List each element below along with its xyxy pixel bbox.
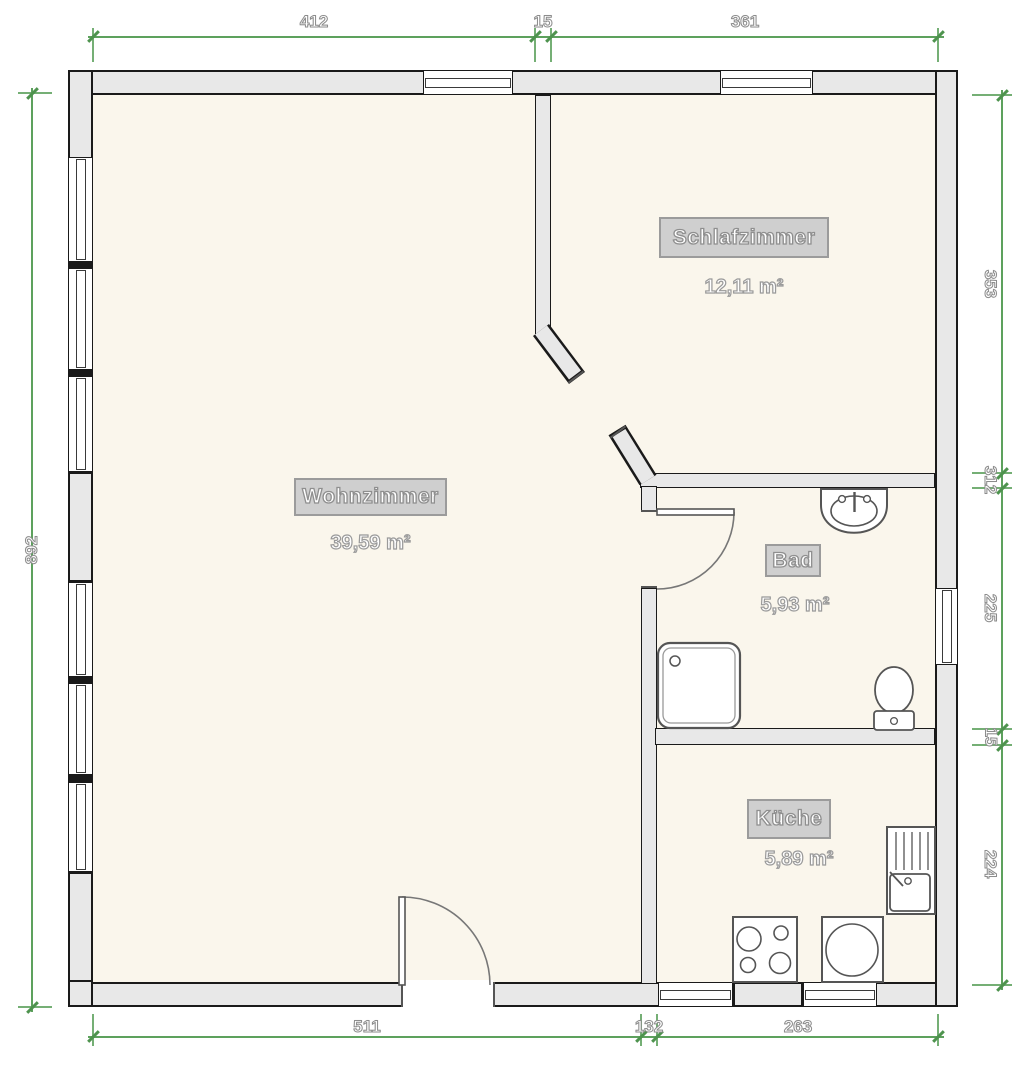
room-label-bad: Bad [765,544,821,577]
dim-label: 412 [300,12,328,32]
dim-label: 132 [635,1017,663,1037]
bedroom-diagonal-wall [541,330,648,480]
dim-label: 892 [22,536,42,564]
bathroom-door[interactable] [657,509,734,589]
dim-label: 312 [980,466,1000,494]
dim-label: 225 [980,594,1000,622]
entry-door[interactable] [399,897,490,985]
room-name: Bad [772,549,813,573]
floor-plan: Wohnzimmer 39,59 m² Schlafzimmer 12,11 m… [0,0,1033,1080]
kitchen-sink-icon [887,827,935,914]
dim-label: 263 [784,1017,812,1037]
washer-icon [822,917,883,982]
shower-icon [658,643,740,728]
room-label-schlafzimmer: Schlafzimmer [659,217,829,258]
dim-label: 15 [534,12,553,32]
room-area: 5,93 m² [761,594,830,617]
washbasin-icon [821,489,887,533]
room-area: 39,59 m² [330,532,410,555]
room-area: 5,89 m² [765,848,834,871]
dim-label: 511 [353,1017,380,1037]
dim-label: 15 [980,728,1000,747]
room-area-wohnzimmer: 39,59 m² [294,528,447,558]
room-area: 12,11 m² [705,276,784,299]
room-name: Schlafzimmer [673,226,816,250]
toilet-icon [874,667,914,730]
stove-icon [733,917,797,982]
dim-label: 361 [731,12,759,32]
room-label-kueche: Küche [747,799,831,839]
room-area-schlafzimmer: 12,11 m² [659,272,829,302]
dim-label: 224 [980,850,1000,878]
dim-label: 353 [980,270,1000,298]
plan-overlay [0,0,1033,1080]
room-name: Küche [756,807,823,831]
room-label-wohnzimmer: Wohnzimmer [294,478,447,516]
room-name: Wohnzimmer [302,485,438,509]
room-area-bad: 5,93 m² [745,590,845,620]
room-area-kueche: 5,89 m² [747,844,851,874]
